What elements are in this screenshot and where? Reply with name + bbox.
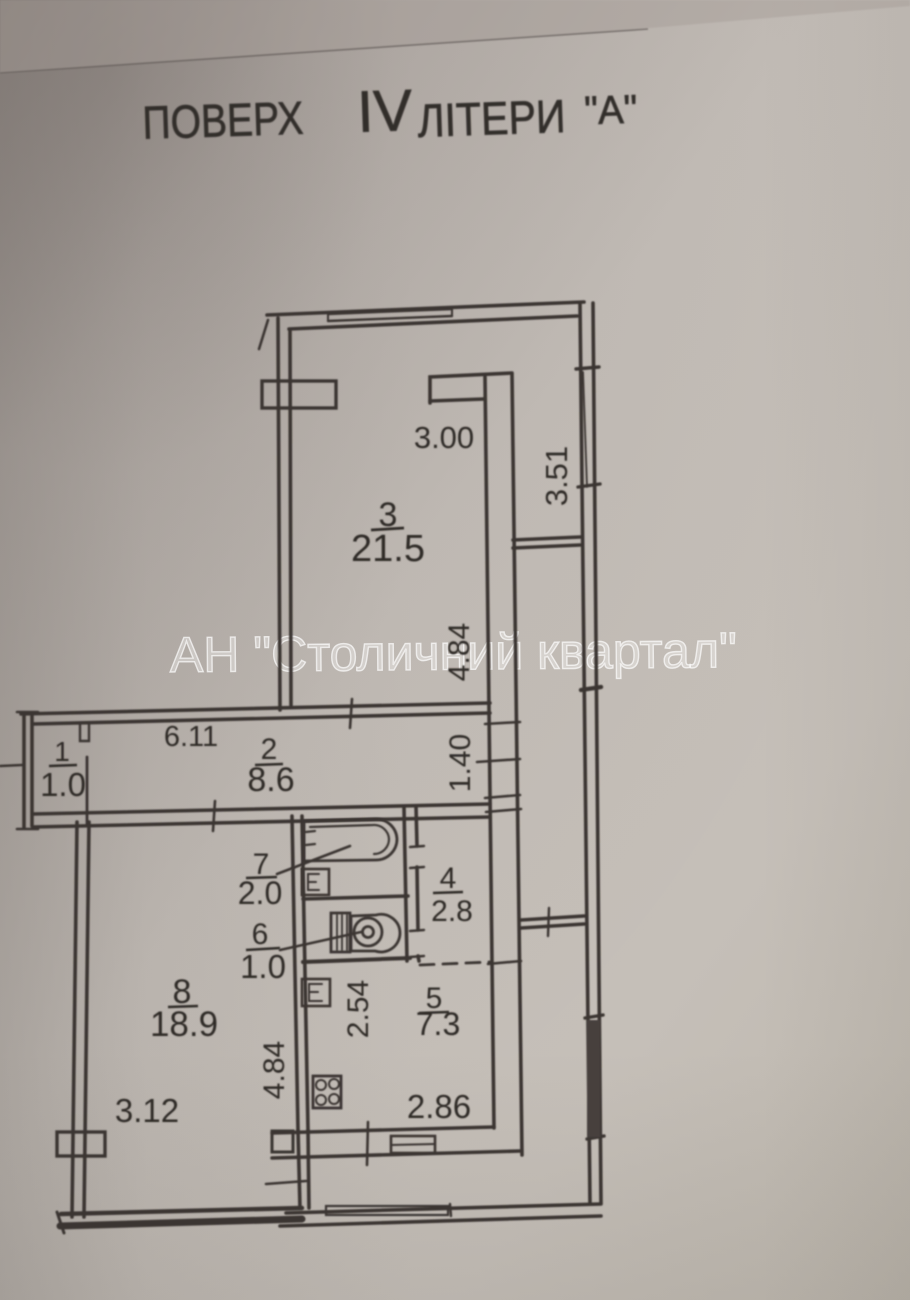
svg-text:IV: IV: [356, 78, 413, 145]
svg-text:8.6: 8.6: [247, 761, 294, 799]
svg-text:3.00: 3.00: [414, 420, 474, 455]
svg-text:"А": "А": [584, 88, 638, 134]
svg-text:ПОВЕРХ: ПОВЕРХ: [142, 92, 305, 149]
svg-text:18.9: 18.9: [150, 1005, 218, 1044]
svg-text:6.11: 6.11: [164, 721, 218, 753]
svg-text:4: 4: [440, 862, 457, 895]
svg-text:1: 1: [54, 736, 70, 767]
svg-text:2.54: 2.54: [342, 980, 375, 1038]
svg-text:7.3: 7.3: [416, 1006, 460, 1042]
svg-text:4.84: 4.84: [443, 623, 476, 681]
svg-text:4.84: 4.84: [258, 1041, 291, 1099]
svg-text:1.0: 1.0: [40, 766, 86, 803]
svg-text:6: 6: [252, 918, 269, 951]
svg-text:2.86: 2.86: [407, 1088, 471, 1125]
svg-text:2.0: 2.0: [238, 875, 282, 911]
svg-text:21.5: 21.5: [351, 528, 425, 570]
svg-text:2.8: 2.8: [431, 895, 473, 928]
svg-text:1.0: 1.0: [240, 948, 286, 985]
svg-text:3.12: 3.12: [115, 1092, 179, 1129]
svg-text:1.40: 1.40: [444, 734, 477, 792]
svg-text:ЛІТЕРИ: ЛІТЕРИ: [417, 90, 567, 147]
svg-text:3.51: 3.51: [539, 446, 574, 506]
